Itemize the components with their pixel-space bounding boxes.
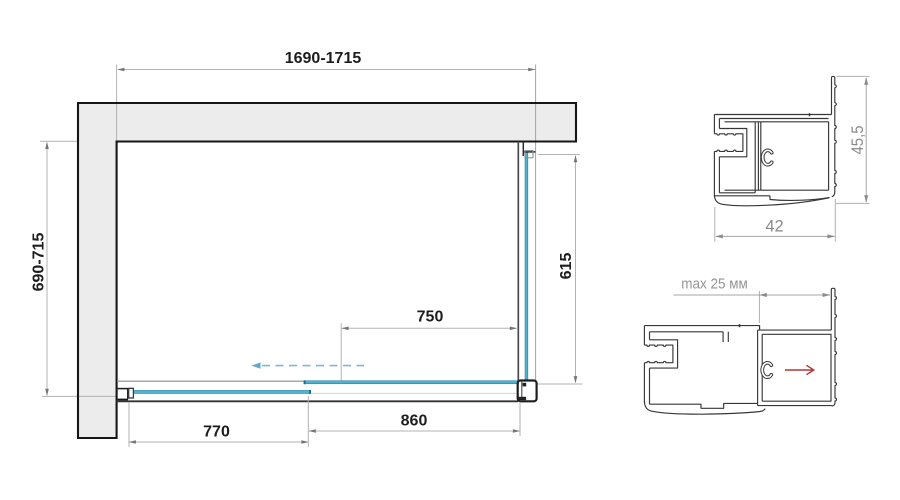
svg-text:max 25 мм: max 25 мм xyxy=(681,276,748,293)
svg-text:42: 42 xyxy=(765,218,783,236)
svg-text:1690-1715: 1690-1715 xyxy=(285,50,362,67)
svg-text:615: 615 xyxy=(558,253,575,280)
svg-text:690-715: 690-715 xyxy=(30,233,47,292)
svg-text:860: 860 xyxy=(401,413,428,430)
svg-text:45,5: 45,5 xyxy=(849,126,867,155)
svg-text:750: 750 xyxy=(417,309,444,326)
svg-text:770: 770 xyxy=(203,424,230,441)
